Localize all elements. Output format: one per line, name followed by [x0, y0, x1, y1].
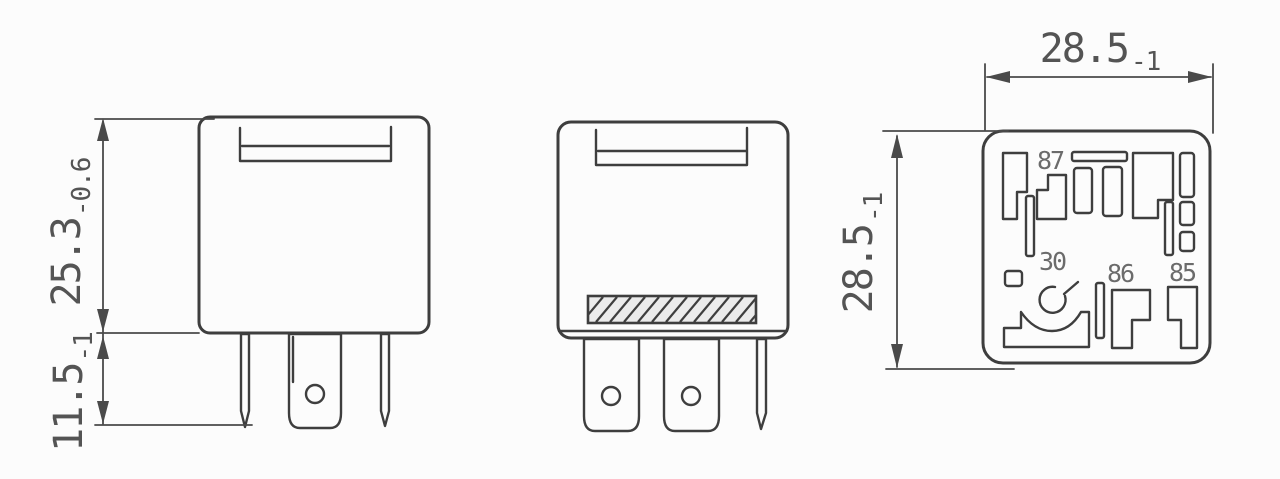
arrow-down-icon [891, 344, 903, 368]
arrow-right-icon [1188, 71, 1212, 83]
terminal-label-87: 87 [1037, 146, 1064, 175]
terminal-pad-85 [1168, 287, 1197, 348]
cutout-notched-right [1133, 153, 1173, 218]
terminal-30-hook [1040, 282, 1078, 313]
hatched-vent-strip [582, 296, 771, 323]
terminal-label-30: 30 [1039, 247, 1066, 276]
pin-blade-left [584, 339, 639, 431]
terminal-bridge-arc [1004, 312, 1089, 347]
cutout-slot [1096, 283, 1104, 338]
cutout [1074, 168, 1092, 213]
relay-body-outline [199, 117, 429, 333]
cutout [1180, 153, 1194, 197]
cutout [1180, 202, 1194, 225]
terminal-pad-86 [1112, 290, 1150, 348]
terminal-label-85: 85 [1169, 258, 1196, 287]
cutout-notched-left [1003, 153, 1027, 219]
pin-blade-left [241, 334, 249, 427]
cutout-slot [1165, 202, 1173, 255]
dim-text-pin-length: 11.5-1 [46, 332, 99, 452]
pin-hole [306, 385, 324, 403]
cutout [1103, 167, 1122, 216]
pin-hole [602, 387, 620, 405]
mounting-slot [596, 128, 747, 165]
cutout-square [1005, 271, 1022, 286]
arrow-down-icon [97, 401, 109, 424]
side-view-hatched [558, 122, 788, 431]
pin-blade-center [289, 334, 341, 428]
mounting-slot [240, 127, 391, 161]
dim-text-base-width: 28.5-1 [1040, 26, 1161, 77]
cutout-slot [1026, 196, 1034, 256]
dim-text-base-depth: 28.5-1 [836, 193, 889, 314]
pin-hole [682, 387, 700, 405]
dim-text-body-height: 25.3-0.6 [44, 158, 97, 307]
terminal-label-86: 86 [1107, 259, 1134, 288]
pin-blade-right [381, 334, 389, 426]
cutout-bar [1072, 152, 1127, 161]
arrow-up-icon [97, 118, 109, 141]
side-view-front: 25.3-0.6 11.5-1 [44, 117, 429, 452]
arrow-up-icon [891, 134, 903, 158]
pin-blade-right [757, 339, 766, 429]
arrow-left-icon [986, 71, 1010, 83]
cutout [1180, 232, 1194, 251]
dim-body-height: 25.3-0.6 11.5-1 [44, 118, 252, 452]
bottom-view-pinout: 87 30 86 85 28.5-1 28.5-1 [836, 26, 1213, 369]
relay-dimensional-drawing: 25.3-0.6 11.5-1 [0, 0, 1280, 479]
drawing-canvas: 25.3-0.6 11.5-1 [0, 0, 1280, 479]
pin-blade-center [664, 339, 719, 431]
arrow-down-icon [97, 309, 109, 332]
dim-base-width: 28.5-1 [985, 26, 1213, 133]
dim-base-depth: 28.5-1 [836, 131, 1014, 369]
terminal-pad-87 [1037, 175, 1066, 219]
